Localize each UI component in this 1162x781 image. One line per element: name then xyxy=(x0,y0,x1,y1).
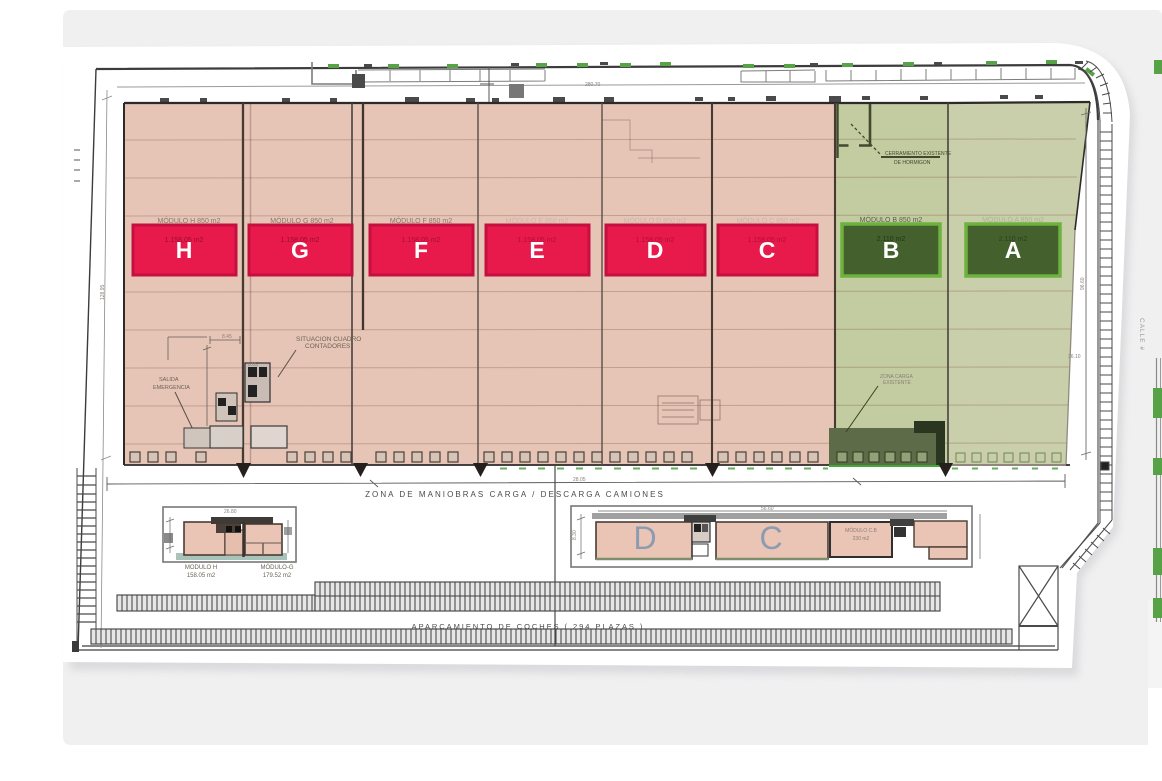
svg-text:EMERGENCIA: EMERGENCIA xyxy=(153,385,190,391)
svg-text:8.45: 8.45 xyxy=(222,334,232,340)
svg-text:D: D xyxy=(633,520,656,556)
svg-text:SALIDA: SALIDA xyxy=(159,377,179,383)
svg-text:1.158,05 m2: 1.158,05 m2 xyxy=(165,237,204,244)
svg-text:28.05: 28.05 xyxy=(573,477,586,483)
svg-text:26.80: 26.80 xyxy=(224,509,237,515)
svg-text:ZONA DE MANIOBRAS CARGA / DESC: ZONA DE MANIOBRAS CARGA / DESCARGA CAMIO… xyxy=(365,490,665,499)
svg-text:1.158,05 m2: 1.158,05 m2 xyxy=(636,237,675,244)
svg-text:8.05: 8.05 xyxy=(248,362,258,368)
svg-text:C: C xyxy=(759,520,782,556)
svg-text:158.05 m2: 158.05 m2 xyxy=(187,573,216,579)
svg-text:1.158,05 m2: 1.158,05 m2 xyxy=(748,237,787,244)
svg-text:DE HORMIGON: DE HORMIGON xyxy=(894,160,931,166)
svg-text:MÓDULO-G: MÓDULO-G xyxy=(261,564,294,571)
svg-text:MÓDULO C.B: MÓDULO C.B xyxy=(845,527,877,534)
svg-text:96.60: 96.60 xyxy=(1080,277,1086,290)
svg-text:128.95: 128.95 xyxy=(100,284,106,300)
svg-text:EXISTENTE: EXISTENTE xyxy=(883,380,911,386)
svg-text:8.30: 8.30 xyxy=(572,530,578,540)
svg-text:1.158,05 m2: 1.158,05 m2 xyxy=(402,237,441,244)
svg-text:179.52 m2: 179.52 m2 xyxy=(263,573,292,579)
svg-text:1.158,05 m2: 1.158,05 m2 xyxy=(518,237,557,244)
svg-text:SITUACION CUADRO: SITUACION CUADRO xyxy=(296,336,361,343)
svg-text:CERRAMIENTO EXISTENTE: CERRAMIENTO EXISTENTE xyxy=(885,151,952,157)
svg-text:CONTADORES: CONTADORES xyxy=(305,343,351,350)
svg-text:280.70: 280.70 xyxy=(585,82,601,88)
svg-text:36.10: 36.10 xyxy=(1068,354,1081,360)
svg-text:2.110 m2: 2.110 m2 xyxy=(877,236,906,243)
svg-text:56.60: 56.60 xyxy=(761,506,774,512)
svg-text:2.110 m2: 2.110 m2 xyxy=(999,236,1028,243)
svg-text:230 m2: 230 m2 xyxy=(853,536,870,542)
svg-text:1.158,05 m2: 1.158,05 m2 xyxy=(281,237,320,244)
svg-text:MODULO H: MODULO H xyxy=(185,565,217,571)
svg-text:CALLE #: CALLE # xyxy=(1138,318,1145,351)
